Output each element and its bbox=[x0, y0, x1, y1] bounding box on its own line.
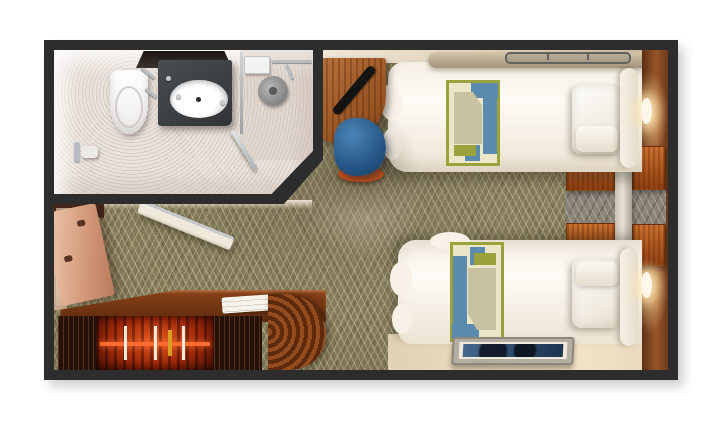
headboard-cushion-1 bbox=[620, 68, 638, 168]
pillow-fold bbox=[576, 262, 618, 286]
bathroom bbox=[54, 50, 313, 194]
sink-drain bbox=[196, 97, 201, 102]
wall-art-frame bbox=[451, 337, 574, 365]
stateroom-floorplan bbox=[0, 0, 726, 421]
hanger bbox=[124, 326, 127, 360]
toilet bbox=[110, 70, 148, 134]
shower-head bbox=[258, 76, 288, 106]
toilet-seat bbox=[115, 86, 143, 128]
faucet bbox=[166, 76, 171, 81]
hanger bbox=[182, 326, 185, 360]
wall-rail bbox=[505, 52, 631, 64]
shower-shelf bbox=[244, 56, 270, 74]
faucet bbox=[176, 94, 181, 99]
pillow-fold bbox=[576, 126, 618, 152]
door-hook bbox=[64, 255, 73, 263]
bathroom-frame bbox=[44, 40, 323, 204]
faucet bbox=[220, 100, 225, 105]
open-wardrobe bbox=[96, 316, 214, 370]
paper-holder-plate bbox=[74, 142, 80, 162]
art-image bbox=[463, 344, 564, 357]
reading-lamp-1 bbox=[641, 98, 652, 124]
hanger bbox=[154, 326, 157, 360]
wood-slat-panel bbox=[214, 316, 262, 370]
bed-runner-2 bbox=[450, 242, 504, 342]
bed-runner-1 bbox=[446, 80, 500, 166]
hanger bbox=[168, 330, 172, 356]
duvet-fold bbox=[392, 304, 412, 334]
duvet-fold bbox=[390, 262, 412, 296]
shower-glass-panel bbox=[240, 52, 243, 134]
armchair bbox=[334, 118, 386, 176]
wood-slat-panel bbox=[58, 316, 96, 370]
toilet-paper-roll bbox=[81, 146, 98, 158]
towel-bar bbox=[272, 60, 312, 63]
door-hook bbox=[77, 219, 86, 227]
reading-lamp-2 bbox=[641, 272, 652, 298]
headboard-cushion-2 bbox=[620, 248, 638, 346]
folded-linens bbox=[222, 294, 271, 313]
